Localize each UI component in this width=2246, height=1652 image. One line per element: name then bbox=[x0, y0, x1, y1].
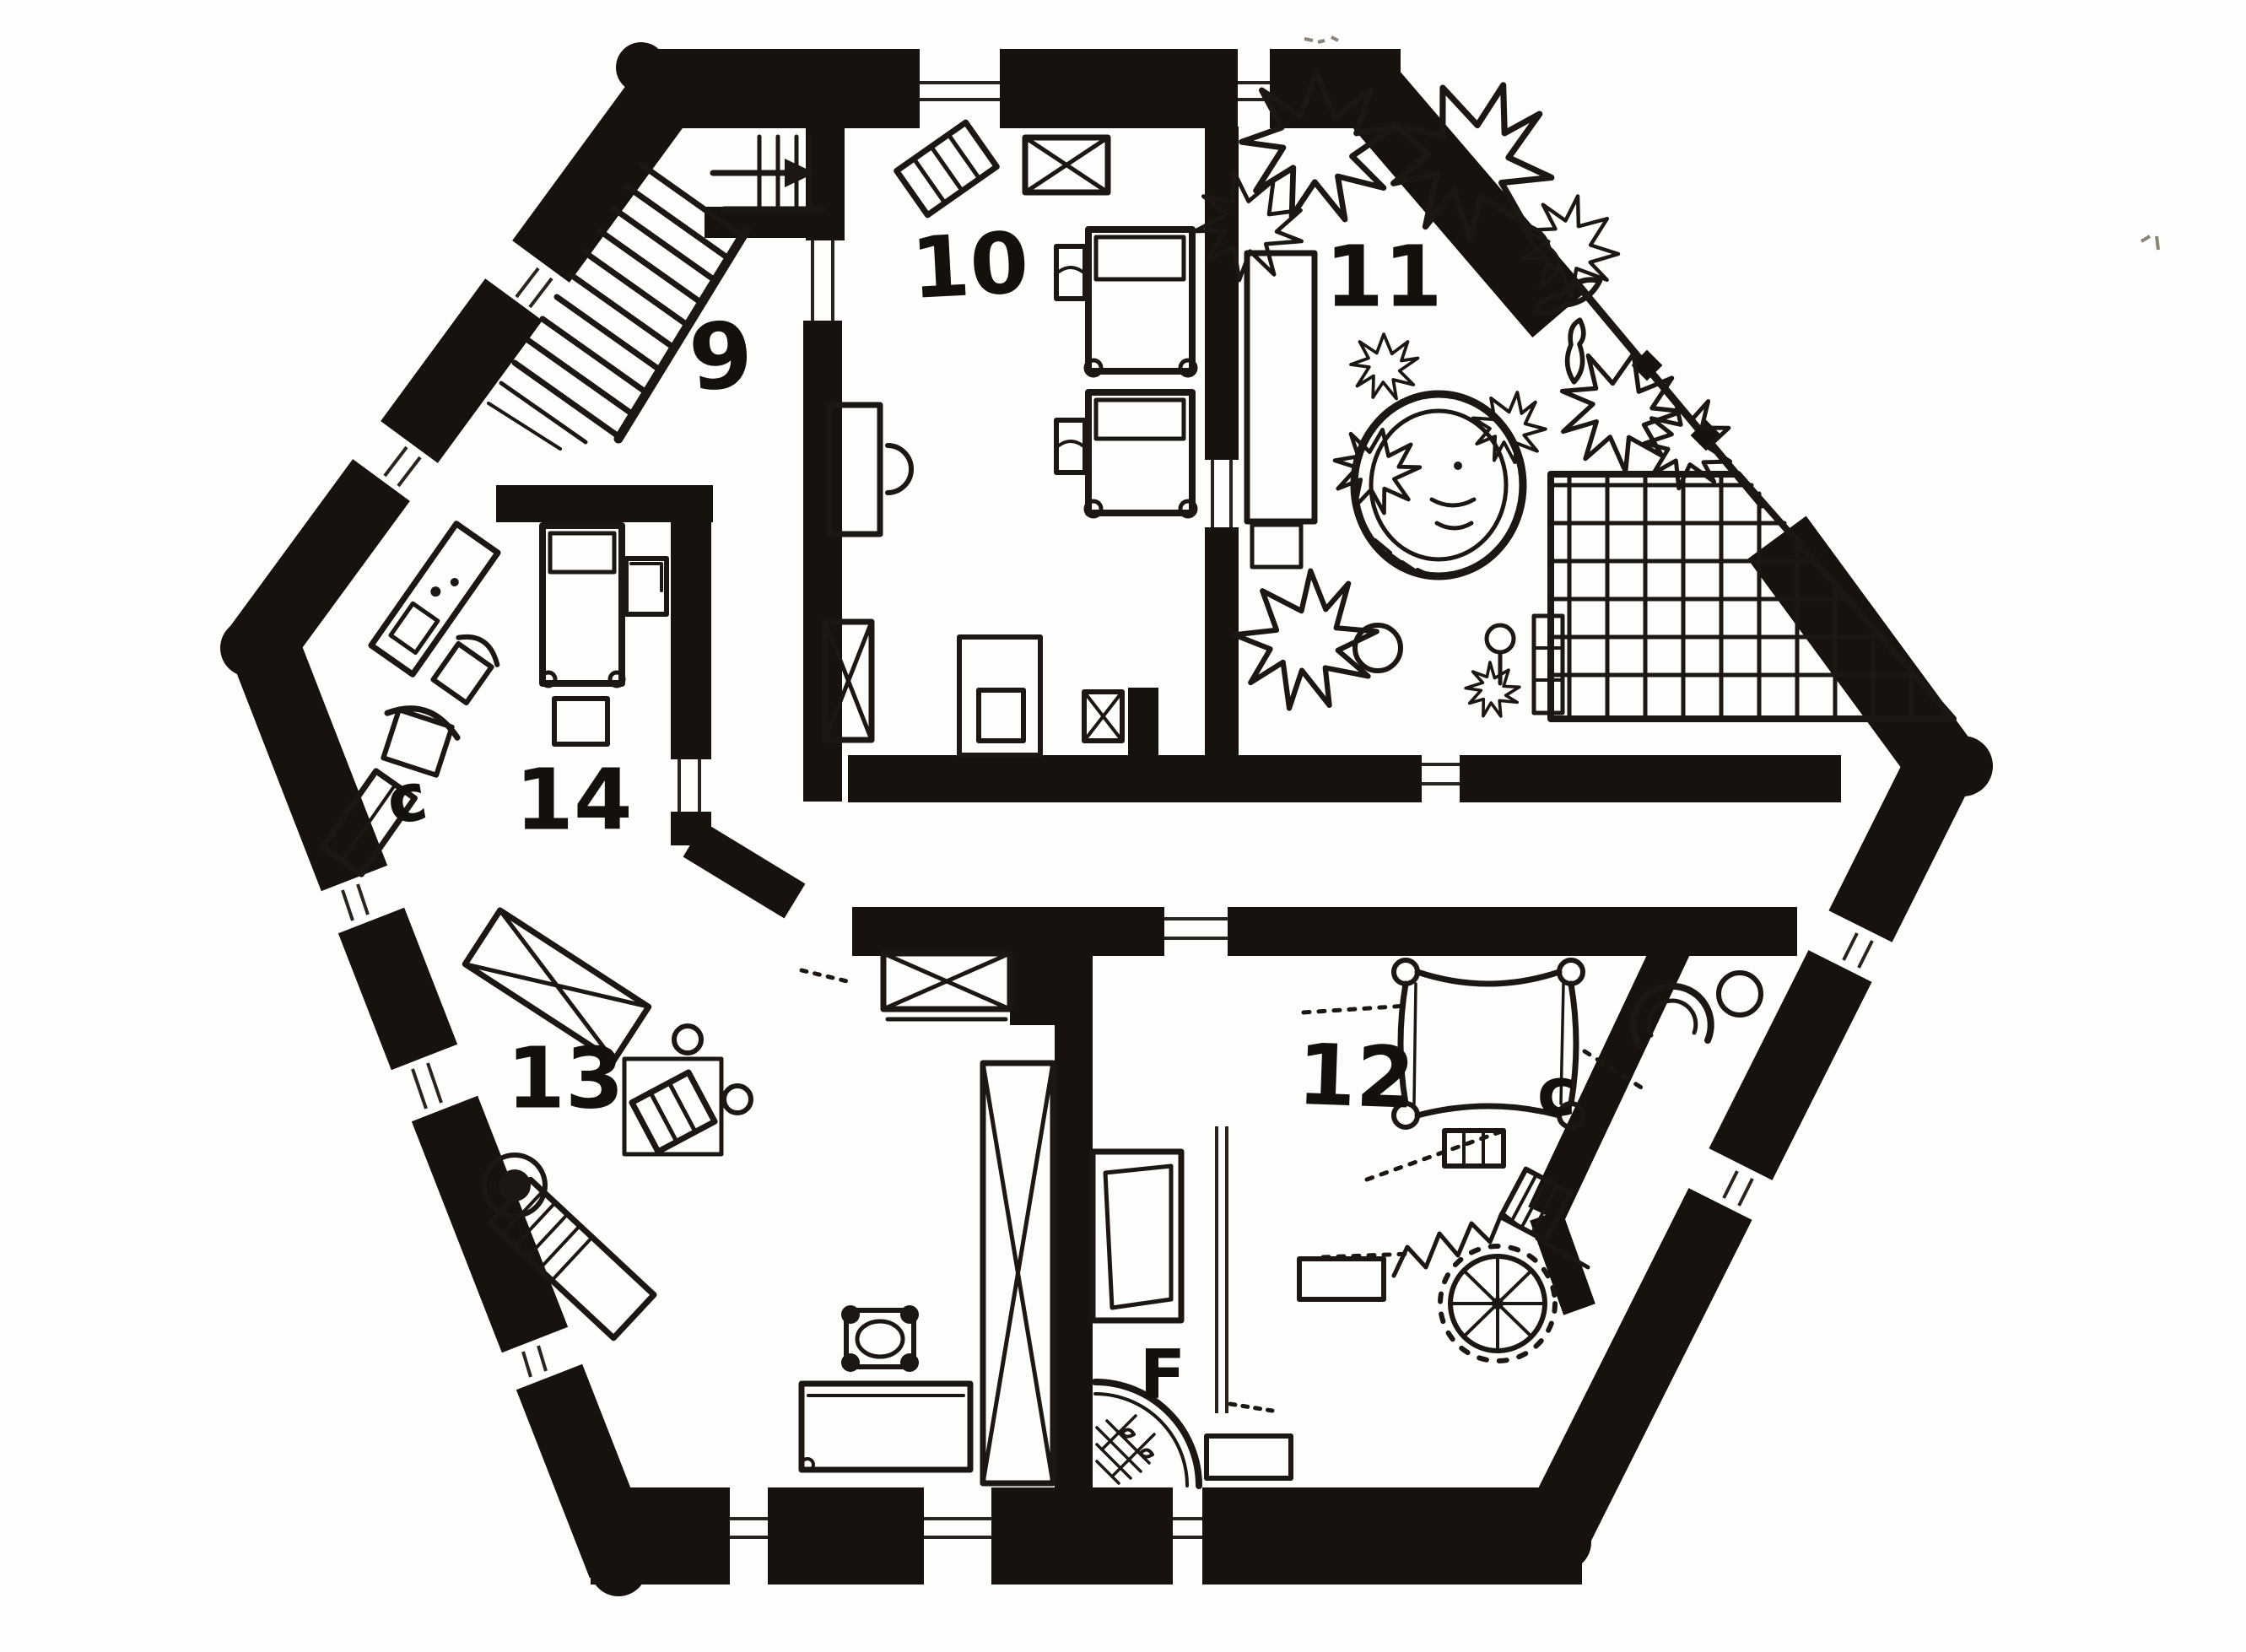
wall-bottom-2 bbox=[768, 1487, 924, 1585]
room-12-label: 12 bbox=[1296, 1025, 1417, 1128]
mat-icon bbox=[1207, 1436, 1291, 1478]
hot-tub-icon bbox=[1327, 380, 1557, 577]
bed-icon bbox=[1086, 392, 1196, 516]
wardrobe-icon bbox=[1084, 692, 1122, 741]
wall-14-right bbox=[671, 522, 711, 759]
room-14-label: 14 bbox=[515, 750, 632, 849]
tall-wardrobe-icon bbox=[983, 1063, 1053, 1483]
table-icon bbox=[841, 1305, 919, 1372]
bed-icon bbox=[1086, 229, 1196, 375]
wardrobe-icon bbox=[1025, 138, 1108, 192]
wall-f-left bbox=[1055, 956, 1093, 1487]
corner-knob bbox=[220, 619, 278, 677]
door-jamb-10-11 bbox=[1128, 688, 1158, 760]
sofa-icon bbox=[802, 1384, 970, 1471]
room-10-label: 10 bbox=[909, 213, 1031, 318]
bathroom-f-label: F bbox=[1140, 1336, 1186, 1414]
corner-knob bbox=[616, 42, 667, 93]
wall-corridor-south-west bbox=[852, 907, 1164, 956]
wall-bottom-4 bbox=[1202, 1487, 1582, 1585]
terrace-garden bbox=[1176, 60, 1953, 737]
stool-icon bbox=[724, 1086, 751, 1113]
bathtub-icon bbox=[1093, 1152, 1181, 1320]
desk-chair-icon bbox=[430, 629, 504, 705]
floor-plan-page: 9 10 11 12 13 14 c c F bbox=[0, 0, 2246, 1652]
armchair-icon bbox=[632, 1072, 715, 1152]
floor-plan-drawing: 9 10 11 12 13 14 c c F bbox=[0, 0, 2246, 1652]
door-swing-dashes bbox=[802, 970, 847, 981]
bench-icon bbox=[1299, 1259, 1384, 1299]
stool-icon bbox=[674, 1026, 701, 1053]
wall-14-13-diagonal bbox=[694, 839, 795, 901]
wall-corridor-south-east bbox=[1228, 907, 1797, 956]
wardrobe-icon bbox=[883, 953, 1010, 1019]
wall-corridor-north-east bbox=[1460, 755, 1841, 802]
wall-corridor-north-west bbox=[848, 755, 1422, 802]
plant-icon bbox=[1351, 334, 1418, 399]
corner-knob bbox=[590, 1539, 647, 1596]
nightstand-icon bbox=[1056, 246, 1085, 472]
wall-14-top bbox=[496, 485, 713, 522]
dresser-icon bbox=[897, 122, 997, 215]
wall-bottom-3 bbox=[991, 1487, 1173, 1585]
corner-knob bbox=[1534, 1514, 1591, 1571]
wall-f-stub bbox=[1010, 956, 1055, 1025]
room-11-label: 11 bbox=[1325, 227, 1442, 326]
outer-walls bbox=[220, 42, 1993, 1596]
closet-c-label-room12: c bbox=[1537, 1055, 1576, 1131]
bench-icon bbox=[554, 699, 607, 744]
stair-up-arrow-icon bbox=[713, 159, 815, 187]
door-dashes bbox=[1230, 1404, 1272, 1411]
wall-top-2 bbox=[1000, 49, 1238, 128]
wall-bottom-right-diagonal bbox=[1553, 744, 1952, 1537]
nightstand-icon bbox=[626, 559, 667, 614]
room-13-label: 13 bbox=[506, 1028, 624, 1127]
person-on-bench-icon bbox=[1455, 616, 1563, 727]
chair-icon bbox=[959, 637, 1040, 755]
planter-icon bbox=[1247, 253, 1315, 521]
staircase bbox=[489, 137, 823, 449]
corner-knob bbox=[1932, 736, 1993, 796]
desk-icon bbox=[371, 524, 498, 675]
room-9-label: 9 bbox=[686, 302, 757, 412]
bed-icon bbox=[542, 526, 624, 686]
spiral-staircase-icon bbox=[1440, 1246, 1555, 1361]
side-table-icon bbox=[1719, 973, 1761, 1015]
palm-plant-icon bbox=[1210, 545, 1401, 737]
wall-10-11-lower bbox=[1205, 527, 1239, 757]
leaf-icon bbox=[1549, 319, 1603, 383]
planter-icon bbox=[1252, 525, 1301, 567]
